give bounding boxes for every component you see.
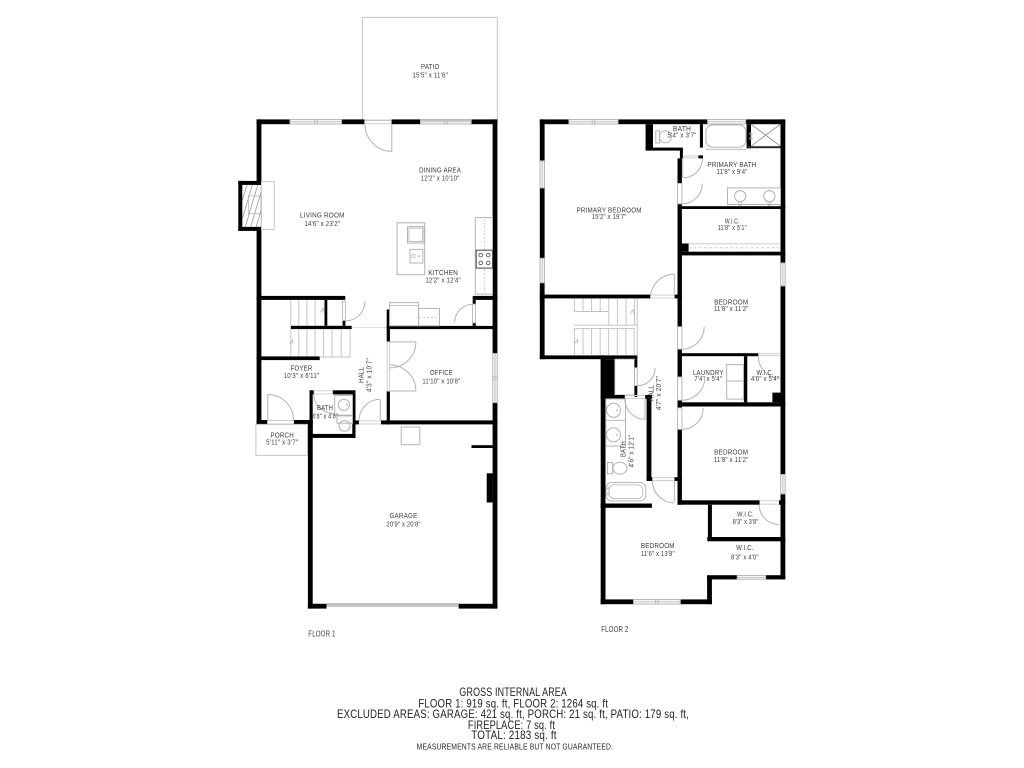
svg-text:DINING AREA: DINING AREA — [419, 168, 461, 175]
svg-text:PATIO: PATIO — [421, 64, 440, 71]
svg-text:5'4" x 3'7": 5'4" x 3'7" — [668, 133, 697, 140]
svg-text:LIVING ROOM: LIVING ROOM — [300, 212, 345, 219]
svg-text:4'3" x 10'7": 4'3" x 10'7" — [366, 358, 373, 392]
svg-text:OFFICE: OFFICE — [430, 370, 453, 377]
svg-text:11'10" x 10'8": 11'10" x 10'8" — [422, 378, 460, 385]
svg-text:11'8" x 11'2": 11'8" x 11'2" — [714, 306, 749, 313]
svg-text:HALL: HALL — [648, 385, 655, 401]
svg-text:15'5" x 11'6": 15'5" x 11'6" — [412, 73, 448, 80]
svg-text:BEDROOM: BEDROOM — [641, 543, 675, 550]
svg-text:15'2" x 19'7": 15'2" x 19'7" — [592, 214, 627, 221]
svg-text:12'2" x 10'10": 12'2" x 10'10" — [421, 175, 460, 182]
svg-text:4'8" x 4'8": 4'8" x 4'8" — [312, 413, 338, 420]
svg-text:FOYER: FOYER — [290, 365, 312, 372]
svg-text:11'8" x 5'1": 11'8" x 5'1" — [718, 225, 747, 232]
svg-text:TOTAL: 2183 sq. ft: TOTAL: 2183 sq. ft — [471, 729, 557, 742]
svg-text:8'3" x 4'0": 8'3" x 4'0" — [731, 554, 759, 561]
svg-text:W.I.C.: W.I.C. — [736, 545, 754, 552]
svg-text:BEDROOM: BEDROOM — [714, 450, 748, 457]
svg-text:FLOOR 1: FLOOR 1 — [308, 630, 335, 639]
svg-text:BATH: BATH — [621, 441, 628, 457]
svg-text:7'4" x 5'4": 7'4" x 5'4" — [694, 376, 722, 383]
svg-text:14'6" x 23'2": 14'6" x 23'2" — [304, 221, 340, 228]
svg-text:4'6" x 12'1": 4'6" x 12'1" — [628, 434, 635, 467]
svg-text:11'6" x 13'8": 11'6" x 13'8" — [641, 551, 675, 558]
svg-text:11'8" x 11'2": 11'8" x 11'2" — [714, 457, 749, 464]
svg-text:10'3" x 6'11": 10'3" x 6'11" — [284, 373, 320, 380]
svg-text:12'2" x 12'4": 12'2" x 12'4" — [425, 278, 461, 285]
svg-text:BATH: BATH — [317, 405, 333, 412]
svg-text:4'0" x 5'4": 4'0" x 5'4" — [751, 376, 780, 383]
svg-text:5'11" x 3'7": 5'11" x 3'7" — [266, 440, 298, 447]
svg-text:PORCH: PORCH — [271, 432, 294, 439]
svg-text:W.I.C.: W.I.C. — [737, 511, 754, 518]
svg-text:HALL: HALL — [358, 367, 365, 383]
svg-text:GARAGE: GARAGE — [389, 513, 417, 520]
svg-text:20'9" x 20'8": 20'9" x 20'8" — [386, 521, 421, 528]
svg-text:MEASUREMENTS ARE RELIABLE BUT: MEASUREMENTS ARE RELIABLE BUT NOT GUARAN… — [417, 741, 614, 751]
svg-text:11'8" x 9'4": 11'8" x 9'4" — [717, 169, 748, 176]
svg-text:8'3" x 3'8": 8'3" x 3'8" — [733, 519, 759, 526]
svg-text:KITCHEN: KITCHEN — [428, 270, 458, 277]
svg-text:4'7" x 20'7": 4'7" x 20'7" — [656, 376, 663, 410]
svg-text:FLOOR 2: FLOOR 2 — [601, 625, 628, 634]
